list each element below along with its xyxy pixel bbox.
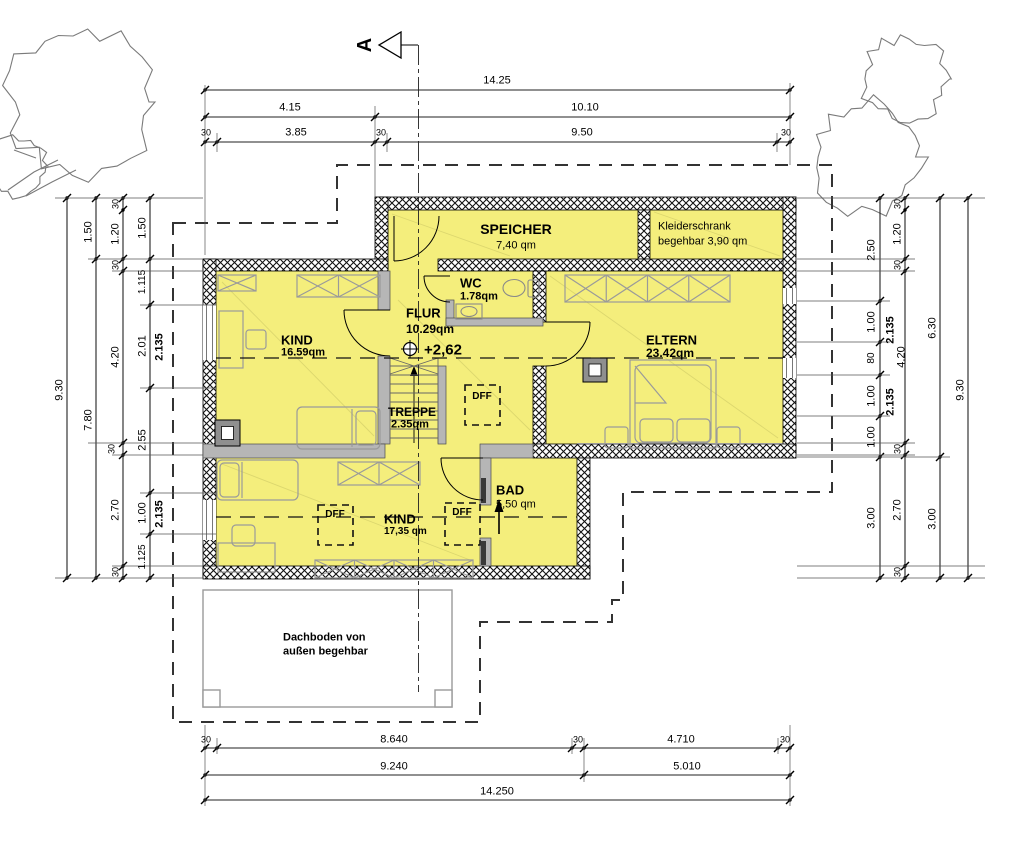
dimension-label: 14.250 [480,787,514,798]
dff-label-kind2-right: DFF [452,508,471,518]
room-name-kleiderschrank: Kleiderschrank [658,222,731,233]
dimension-label: 2.70 [111,499,122,520]
room-name-flur: FLUR [406,307,441,320]
dimension-label: 4.15 [279,103,300,114]
floor-plan-drawing [0,0,1021,841]
dimension-label: 1.125 [138,544,148,569]
dimension-label: 4.20 [897,346,908,367]
room-name-wc: WC [460,277,482,290]
dimension-label: 30 [894,567,903,577]
dimension-label: 4.20 [111,346,122,367]
room-area-kleiderschrank: begehbar 3,90 qm [658,237,747,248]
dimension-label: 7.80 [84,409,95,430]
dimension-label: 14.25 [483,76,511,87]
tree-icon [3,29,155,182]
dimension-label: 2.135 [886,316,897,344]
room-name-eltern: ELTERN [646,334,697,347]
dimension-label: 30 [894,260,903,270]
dimension-label: 30 [894,444,903,454]
room-name-treppe: TREPPE [388,406,436,418]
dimension-label: 30 [780,736,790,745]
room-area-kind-2: 17,35 qm [384,527,427,537]
dimension-label: 1.50 [138,217,149,238]
attic-note-line2: außen begehbar [283,647,368,658]
room-area-bad: 5,50 qm [496,500,536,511]
dimension-label: 2.135 [155,500,166,528]
dimension-label: 9.240 [380,762,408,773]
dimension-label: 30 [573,736,583,745]
dimension-label: 30 [894,199,903,209]
dimension-label: 1.00 [138,502,149,523]
dimension-label: 1.00 [867,311,878,332]
dimension-label: 30 [112,567,121,577]
room-area-speicher: 7,40 qm [496,241,536,252]
dimension-label: 30 [112,260,121,270]
dimension-label: 2.135 [155,333,166,361]
dimension-label: 1.50 [84,221,95,242]
dimension-label: 2.55 [138,429,149,450]
dimension-label: 30 [108,444,117,454]
dimension-label: 4.710 [667,735,695,746]
dimension-label: 9.30 [55,379,66,400]
tree-icon [0,135,47,199]
room-name-kind-1: KIND [281,334,313,347]
dimension-label: 30 [376,129,386,138]
dimension-label: 2.01 [138,335,149,356]
room-name-kind-2: KIND [384,513,416,526]
dimension-label: 2.50 [867,239,878,260]
tree-icon [861,35,951,123]
dimension-label: 9.30 [956,379,967,400]
room-area-eltern: 23.42qm [646,347,694,359]
room-area-flur: 10.29qm [406,323,454,335]
dff-label-flur: DFF [472,392,491,402]
dimension-label: 1.20 [893,223,904,244]
room-name-bad: BAD [496,484,524,497]
dff-label-kind2-left: DFF [325,510,344,520]
dimension-label: 3.85 [285,128,306,139]
room-area-wc: 1.78qm [460,292,498,303]
dimension-label: 6.30 [928,317,939,338]
dimension-label: 8.640 [380,735,408,746]
dimension-label: 9.50 [571,128,592,139]
dimension-label: 80 [867,352,877,363]
level-annotation: +2,62 [424,343,462,358]
dimension-label: 3.00 [867,507,878,528]
dimension-label: 2.135 [886,388,897,416]
room-area-treppe: 2.35qm [391,420,429,431]
tree-decoration-group [0,29,951,216]
dimension-label: 30 [201,736,211,745]
dimension-label: 30 [201,129,211,138]
dimension-label: 1.00 [867,385,878,406]
dimension-label: 2.70 [893,499,904,520]
dimension-label: 10.10 [571,103,599,114]
dimension-label: 1.00 [867,426,878,447]
section-marker-label: A [355,38,375,52]
floor-plan: SPEICHER7,40 qmKleiderschrankbegehbar 3,… [0,0,1021,841]
dimension-label: 3.00 [928,508,939,529]
dimension-label: 30 [781,129,791,138]
dimension-label: 30 [112,199,121,209]
room-name-speicher: SPEICHER [480,222,552,236]
dimension-label: 1.115 [138,270,148,294]
attic-note-line1: Dachboden von [283,633,366,644]
dimension-label: 1.20 [111,223,122,244]
room-area-kind-1: 16.59qm [281,348,325,359]
dimension-label: 5.010 [673,762,701,773]
